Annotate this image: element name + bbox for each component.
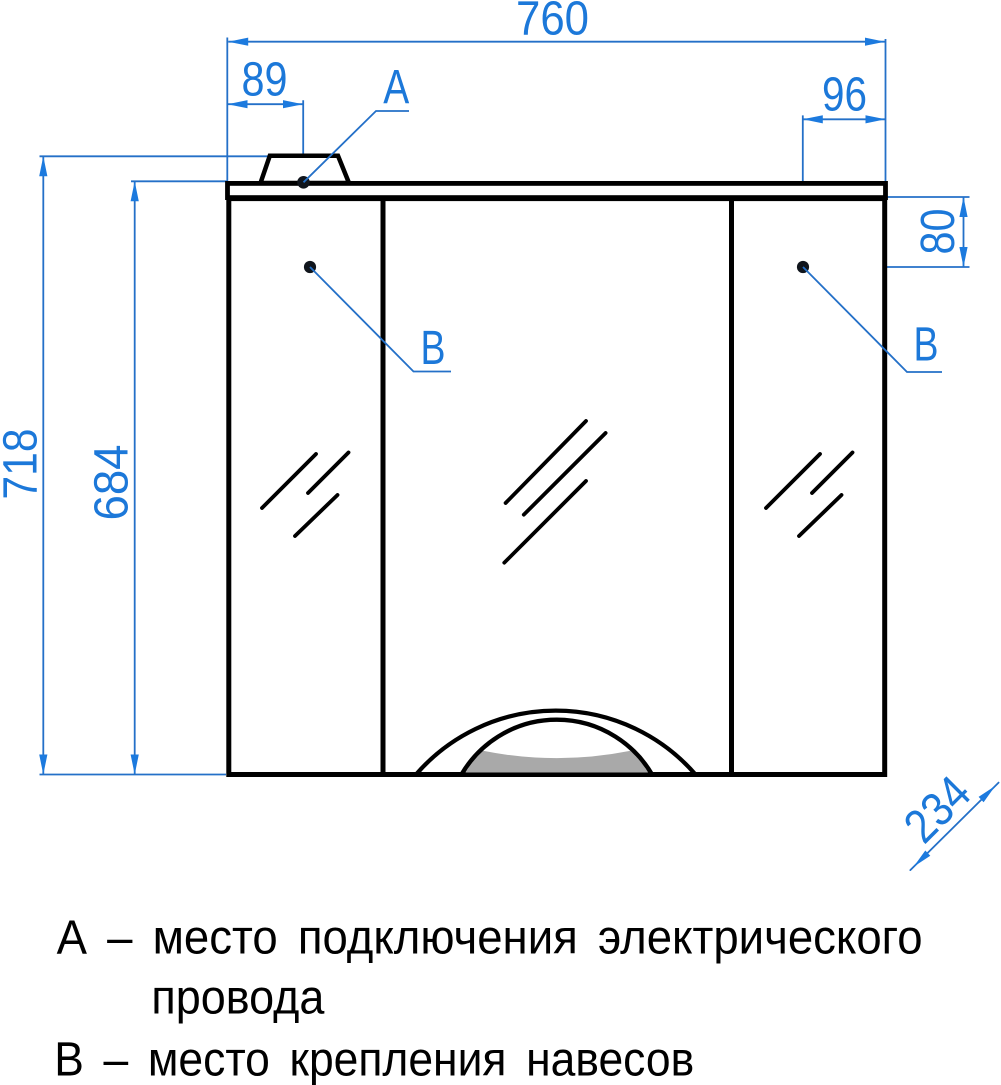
svg-text:провода: провода bbox=[151, 971, 324, 1025]
svg-text:718: 718 bbox=[0, 429, 48, 500]
svg-text:684: 684 bbox=[86, 445, 139, 521]
svg-text:B: B bbox=[914, 319, 939, 372]
svg-text:760: 760 bbox=[516, 0, 589, 46]
svg-text:В – место крепления навесов: В – место крепления навесов bbox=[54, 1033, 694, 1085]
svg-text:89: 89 bbox=[242, 54, 288, 107]
svg-text:B: B bbox=[421, 322, 446, 375]
svg-text:96: 96 bbox=[822, 69, 867, 122]
svg-text:A: A bbox=[383, 61, 409, 114]
svg-text:80: 80 bbox=[912, 209, 965, 255]
svg-text:А – место подключения электрич: А – место подключения электрического bbox=[57, 911, 923, 965]
